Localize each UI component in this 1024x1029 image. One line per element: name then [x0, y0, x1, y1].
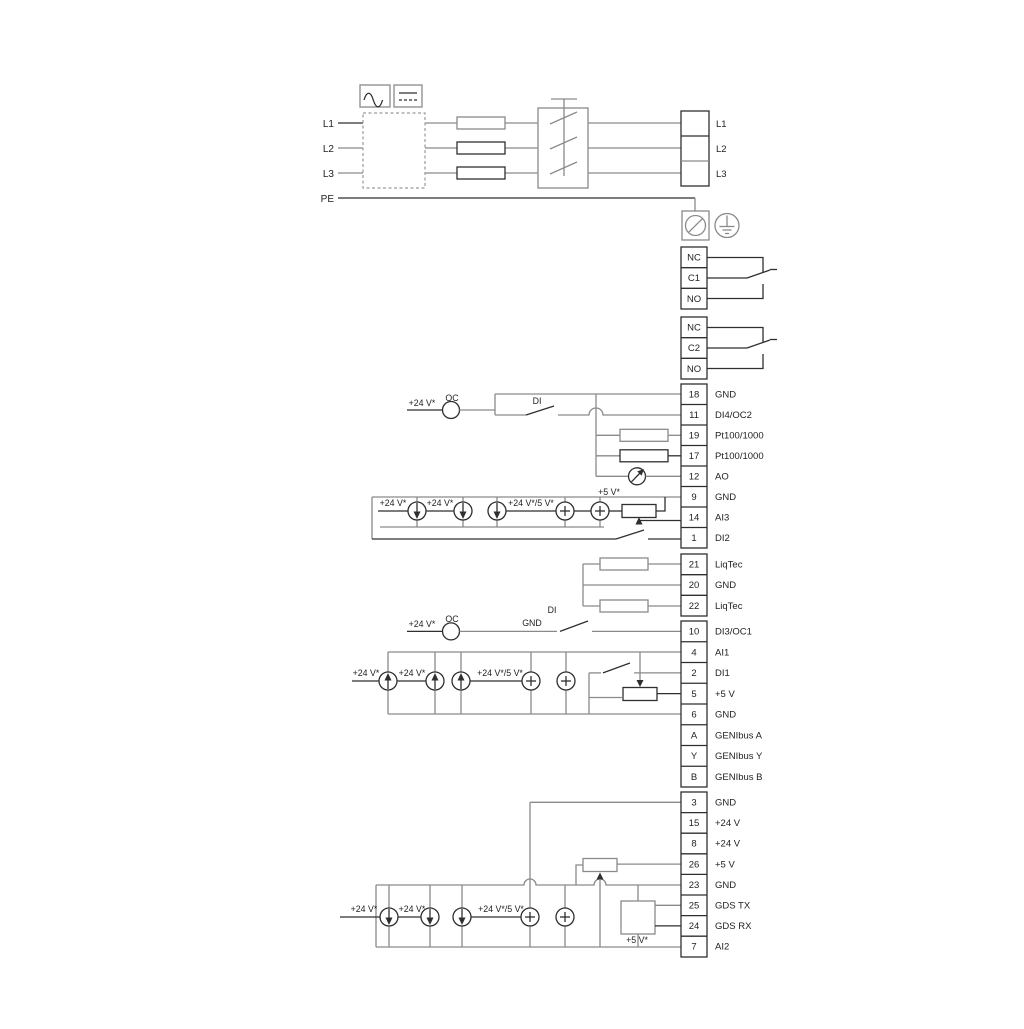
gnd-label: GND [522, 618, 542, 628]
ao-meter-icon [629, 468, 646, 485]
terminal-label: GENIbus B [715, 772, 763, 783]
terminal-label: GND [715, 880, 736, 891]
liqtec-section: 21 20 22 LiqTec GND LiqTec [583, 554, 743, 616]
terminal-label: Pt100/1000 [715, 431, 764, 442]
circuit-breaker [538, 99, 588, 188]
v24-label: +24 V* [409, 398, 436, 408]
plus-source-icon [522, 672, 540, 690]
terminal-number: B [691, 772, 697, 783]
terminal-number: 22 [689, 601, 700, 612]
oc-circle [443, 623, 460, 640]
terminal-number: 18 [689, 390, 700, 401]
relay-terminal: NC [687, 323, 701, 334]
terminal-label: GENIbus A [715, 730, 763, 741]
terminal-label: +5 V [715, 689, 735, 700]
io-terminal-block-2: 10 4 2 5 6 A Y B DI3/OC1 AI1 DI1 +5 V GN… [681, 621, 763, 787]
oc-circle [443, 402, 460, 419]
terminal-number: 10 [689, 627, 700, 638]
mains-output-label: L2 [716, 144, 727, 155]
di-label: DI [548, 605, 557, 615]
terminal-number: 3 [691, 798, 696, 809]
io-terminal-block-3: 3 15 8 26 23 25 24 7 GND +24 V +24 V +5 … [681, 792, 752, 957]
terminal-label: GND [715, 492, 736, 503]
dc-icon [394, 85, 422, 107]
relay-terminal: NC [687, 253, 701, 264]
terminal-number: 6 [691, 710, 696, 721]
relay-terminal: NO [687, 364, 701, 375]
terminal-number: 17 [689, 451, 700, 462]
di-switch [526, 406, 554, 415]
ac-icon [360, 85, 390, 107]
terminal-label: GDS TX [715, 901, 751, 912]
pe-screw-terminal [682, 211, 709, 240]
terminal-number: 12 [689, 472, 700, 483]
mains-input-label: L1 [323, 119, 335, 130]
current-source-icon [452, 672, 470, 690]
mains-section: L1 L2 L3 PE [321, 85, 727, 205]
v24-label: +24 V* [427, 498, 454, 508]
terminal-label: +24 V [715, 839, 741, 850]
pt100-resistor [620, 429, 668, 441]
plus-source-icon [591, 502, 609, 520]
terminal-number: 4 [691, 647, 696, 658]
pe-section [338, 198, 739, 240]
potentiometer [623, 688, 657, 701]
relay-terminal: C2 [688, 343, 700, 354]
v24-label: +24 V* [380, 498, 407, 508]
v24-5v-label: +24 V*/5 V* [508, 498, 554, 508]
mains-terminal-block [681, 111, 709, 186]
v24-label: +24 V* [409, 619, 436, 629]
terminal-label: GDS RX [715, 921, 752, 932]
relay-contact [707, 258, 777, 299]
pt100-resistor [620, 450, 668, 462]
terminal-number: 23 [689, 880, 700, 891]
gds-sensor-box: +5 V* [621, 885, 681, 947]
terminal-number: 15 [689, 818, 700, 829]
terminal-label: GENIbus Y [715, 751, 763, 762]
ai2-supply-chain: +24 V* +24 V* +24 V*/5 V* +5 V* [340, 802, 681, 947]
di4-oc2-wiring: +24 V* OC DI [407, 393, 681, 485]
current-source-icon [408, 502, 426, 520]
terminal-label: DI3/OC1 [715, 627, 752, 638]
current-source-icon [488, 502, 506, 520]
terminal-label: DI4/OC2 [715, 410, 752, 421]
liqtec-sensor-resistor [600, 558, 648, 570]
relay-terminal: NO [687, 294, 701, 305]
terminal-number: Y [691, 751, 698, 762]
terminal-number: 5 [691, 689, 696, 700]
fuse [457, 117, 505, 129]
di2-switch [616, 530, 644, 539]
terminal-label: AO [715, 472, 729, 483]
relay-1: NC C1 NO [681, 247, 777, 309]
v5-label: +5 V* [598, 487, 620, 497]
terminal-label: Pt100/1000 [715, 451, 764, 462]
plus-source-icon [556, 908, 574, 926]
wiper-arrow [597, 873, 604, 880]
terminal-number: 1 [691, 533, 696, 544]
terminal-label: GND [715, 390, 736, 401]
v24-label: +24 V* [399, 668, 426, 678]
terminal-number: 19 [689, 431, 700, 442]
terminal-label: GND [715, 710, 736, 721]
terminal-label: GND [715, 580, 736, 591]
terminal-number: 25 [689, 901, 700, 912]
wiper-arrow [637, 680, 644, 687]
terminal-number: A [691, 730, 698, 741]
v5-label: +5 V* [626, 935, 648, 945]
potentiometer [622, 505, 656, 518]
terminal-label: LiqTec [715, 601, 743, 612]
current-source-icon [426, 672, 444, 690]
terminal-label: LiqTec [715, 560, 743, 571]
mains-output-label: L1 [716, 119, 727, 130]
terminal-number: 9 [691, 492, 696, 503]
pe-label: PE [321, 194, 335, 205]
current-source-icon [454, 502, 472, 520]
di-switch [560, 621, 588, 631]
relay-2: NC C2 NO [681, 317, 777, 379]
terminal-number: 24 [689, 921, 700, 932]
mains-wires [338, 123, 681, 173]
terminal-number: 14 [689, 513, 700, 524]
plus-source-icon [557, 672, 575, 690]
terminal-label: +5 V [715, 859, 735, 870]
terminal-number: 11 [689, 410, 699, 421]
current-source-icon [379, 672, 397, 690]
terminal-label: DI1 [715, 668, 730, 679]
terminal-number: 20 [689, 580, 700, 591]
current-source-icon [380, 908, 398, 926]
relay-contact [707, 328, 777, 369]
terminal-label: +24 V [715, 818, 741, 829]
wiring-diagram: L1 L2 L3 PE [0, 0, 1024, 1024]
ai1-supply-chain: +24 V* +24 V* +24 V*/5 V* [352, 652, 681, 714]
diagram-canvas: L1 L2 L3 PE [0, 0, 1024, 1024]
plus-source-icon [521, 908, 539, 926]
v24-5v-label: +24 V*/5 V* [478, 904, 524, 914]
mains-input-label: L2 [323, 144, 335, 155]
terminal-number: 8 [691, 839, 696, 850]
v24-label: +24 V* [351, 904, 378, 914]
fuse [457, 167, 505, 179]
current-source-icon [421, 908, 439, 926]
fuse [457, 142, 505, 154]
terminal-label: GND [715, 798, 736, 809]
ai3-supply-chain: +24 V* +24 V* +24 V*/5 V* +5 V* [372, 487, 681, 539]
io-terminal-block-1: 18 11 19 17 12 9 14 1 GND DI4/OC2 Pt100/… [681, 384, 764, 548]
current-source-icon [453, 908, 471, 926]
v24-label: +24 V* [353, 668, 380, 678]
v24-5v-label: +24 V*/5 V* [477, 668, 523, 678]
terminal-number: 7 [691, 942, 696, 953]
terminal-number: 21 [689, 560, 700, 571]
di-label: DI [533, 396, 542, 406]
liqtec-sensor-resistor [600, 600, 648, 612]
terminal-label: AI3 [715, 513, 729, 524]
mains-output-label: L3 [716, 169, 727, 180]
di1-switch [603, 663, 630, 673]
terminal-label: AI2 [715, 942, 729, 953]
terminal-number: 2 [691, 668, 696, 679]
terminal-number: 26 [689, 859, 700, 870]
relay-terminal: C1 [688, 273, 700, 284]
earth-icon [715, 214, 739, 238]
terminal-label: DI2 [715, 533, 730, 544]
rfi-filter-box [363, 113, 425, 188]
plus-source-icon [556, 502, 574, 520]
mains-input-label: L3 [323, 169, 335, 180]
potentiometer [583, 859, 617, 872]
terminal-label: AI1 [715, 647, 729, 658]
